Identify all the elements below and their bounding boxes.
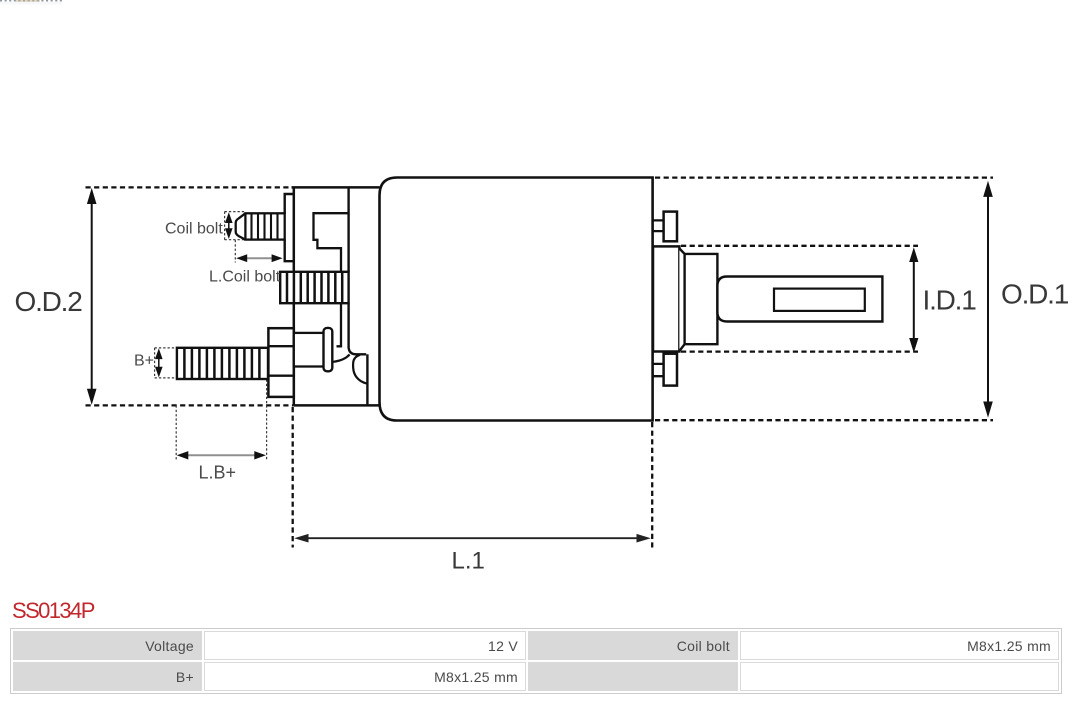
svg-text:O.D.2: O.D.2	[15, 286, 83, 317]
svg-text:I.D.1: I.D.1	[923, 285, 977, 316]
svg-text:O.D.1: O.D.1	[1001, 279, 1069, 310]
svg-text:B+: B+	[134, 353, 154, 370]
svg-text:L.B+: L.B+	[199, 462, 237, 482]
svg-text:Coil bolt: Coil bolt	[165, 221, 223, 238]
svg-text:L.Coil bolt: L.Coil bolt	[209, 268, 281, 285]
svg-text:L.1: L.1	[452, 548, 485, 575]
